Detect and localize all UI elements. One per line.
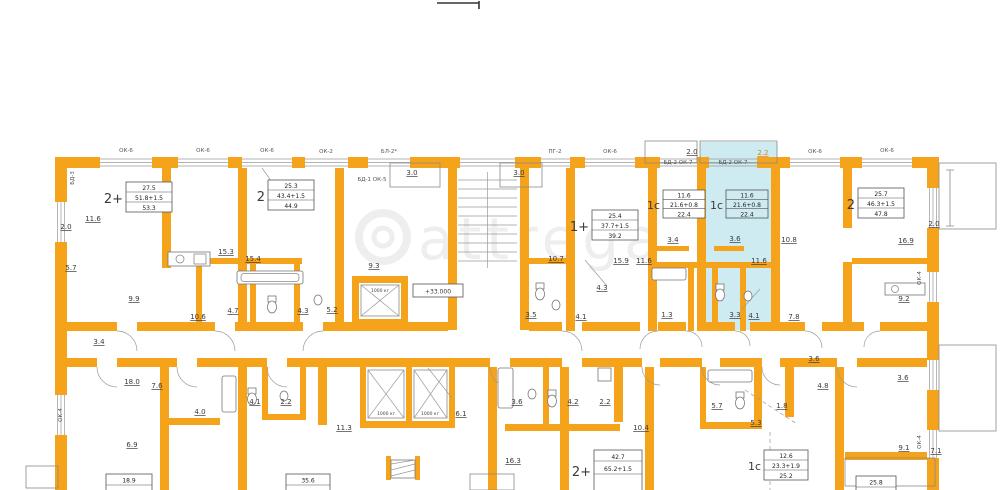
gear-icon	[359, 213, 407, 261]
stamp-row: 65.2+1.5	[604, 466, 632, 473]
stamp-row: 53.3	[142, 205, 156, 212]
balcony-area-label-highlight: 2.2	[757, 149, 768, 157]
stamp-row: 25.7	[874, 191, 888, 198]
window-mark: ОК-6	[260, 148, 274, 154]
room-area-label: 16.9	[898, 237, 914, 245]
section-mark	[437, 1, 479, 9]
room-area-label: 1.3	[661, 311, 672, 319]
stamp-room-count: 2+	[104, 192, 123, 207]
room-area-label: 10.8	[781, 236, 797, 244]
lift-capacity-label: 1000 кг	[377, 411, 396, 417]
room-area-label: 9.3	[368, 262, 379, 270]
apartment-stamp: 2 25.7 46.3+1.5 47.8	[847, 188, 904, 218]
window-mark: БЛ-2*	[381, 149, 397, 155]
balcony-area-label: 2.0	[928, 220, 939, 228]
room-area-label: 7.8	[788, 313, 799, 321]
stamp-row: 23.3+1.9	[772, 463, 800, 470]
window-mark: ОК-6	[196, 148, 210, 154]
stamp-row: 37.7+1.5	[601, 223, 629, 230]
room-area-label: 2.2	[280, 398, 291, 406]
room-area-label: 18.0	[124, 378, 140, 386]
room-area-label: 11.6	[85, 215, 101, 223]
window-mark: ПГ-2	[549, 149, 562, 155]
room-area-label: 7.6	[151, 382, 163, 390]
window-mark: ОК-4	[917, 271, 923, 285]
room-area-label: 3.4	[93, 338, 105, 346]
window-mark: ОК-2	[319, 149, 333, 155]
apartment-stamp: 2 25.3 43.4+1.5 44.9	[257, 180, 314, 210]
window-mark: БД-2 ОК-7	[663, 160, 693, 166]
stamp-room-count: 2+	[572, 465, 591, 480]
stamp-row: 18.9	[122, 478, 136, 485]
room-area-label: 4.0	[194, 408, 205, 416]
window-mark: ОК-6	[119, 148, 133, 154]
room-area-label: 4.1	[575, 313, 586, 321]
stamp-row: 11.6	[677, 193, 691, 200]
stamp-row: 22.4	[740, 211, 754, 218]
room-area-label: 11.6	[636, 257, 652, 265]
room-area-label: 5.3	[750, 419, 761, 427]
room-area-label: 7.1	[930, 447, 941, 455]
floorplan-screenshot: attrega	[0, 0, 1000, 490]
stamp-room-count: 2	[257, 190, 265, 205]
room-area-label: 1.8	[776, 402, 787, 410]
window-mark: БД-2 ОК-7	[718, 160, 748, 166]
elevation-mark: +33.000	[425, 289, 451, 296]
stamp-row: 44.9	[284, 203, 298, 210]
room-area-label: 6.9	[126, 441, 137, 449]
stamp-row: 22.4	[677, 211, 691, 218]
room-area-label: 5.7	[65, 264, 76, 272]
room-area-label: 15.3	[218, 248, 234, 256]
room-area-label: 11.6	[751, 257, 767, 265]
room-area-label: 3.5	[525, 311, 536, 319]
stamp-row: 25.2	[779, 473, 793, 480]
room-area-label: 9.2	[898, 295, 909, 303]
stamp-row: 25.4	[608, 213, 622, 220]
stamp-room-count: 1+	[570, 220, 589, 235]
room-area-label: 4.8	[817, 382, 828, 390]
window-mark: ОК-4	[58, 408, 64, 422]
room-area-label: 3.6	[808, 355, 820, 363]
lift-capacity-label: 1000 кг	[421, 411, 440, 417]
room-area-label: 4.3	[297, 307, 308, 315]
apartment-stamp: 2+ 27.5 51.8+1.5 53.3	[104, 182, 172, 212]
room-area-label: 15.4	[245, 255, 261, 263]
balcony-area-label: 2.0	[686, 148, 697, 156]
stamp-row: 51.8+1.5	[135, 195, 163, 202]
stamp-row: 47.8	[874, 211, 888, 218]
stamp-row: 35.6	[301, 478, 315, 485]
stamp-room-count: 2	[847, 198, 855, 213]
room-area-label: 6.1	[455, 410, 466, 418]
stamp-room-count: 1с	[710, 199, 723, 212]
room-area-label: 16.3	[505, 457, 521, 465]
stamp-row: 12.6	[779, 453, 793, 460]
stamp-row: 11.6	[740, 193, 754, 200]
balcony-area-label: 3.0	[513, 169, 524, 177]
room-area-label: 10.7	[548, 255, 564, 263]
apartment-stamp-partial: 35.6	[286, 474, 330, 490]
stamp-room-count: 1с	[748, 460, 761, 473]
apartment-stamp: 2+ 42.7 65.2+1.5	[572, 450, 642, 490]
room-area-label: 3.6	[729, 235, 741, 243]
room-area-label: 4.1	[748, 312, 759, 320]
stamp-row: 21.6+0.8	[733, 202, 761, 209]
window-mark: ОК-6	[603, 149, 617, 155]
stamp-row: 27.5	[142, 185, 156, 192]
room-area-label: 4.7	[227, 307, 238, 315]
door-mark: БД-1 ОК-5	[357, 177, 387, 183]
room-area-label: 10.4	[633, 424, 649, 432]
balcony-area-label: 3.0	[406, 169, 417, 177]
room-area-label: 5.7	[711, 402, 722, 410]
room-area-label: 4.1	[249, 398, 260, 406]
room-area-label: 3.3	[729, 311, 740, 319]
room-area-label: 2.2	[599, 398, 610, 406]
stamp-row: 25.8	[869, 480, 883, 487]
window-mark: ОК-6	[880, 148, 894, 154]
lift-capacity-label: 1000 кг	[371, 288, 390, 294]
room-area-label: 3.6	[511, 398, 523, 406]
stamp-row: 39.2	[608, 233, 622, 240]
window-mark: ОК-6	[808, 149, 822, 155]
room-area-label: 4.3	[596, 284, 607, 292]
door-mark: БД-3	[70, 171, 76, 185]
room-area-labels: 11.6 2.0 5.7 15.3 15.4 9.9 10.6 4.7 4.3 …	[60, 148, 941, 465]
room-area-label: 10.6	[190, 313, 206, 321]
room-area-label: 3.6	[897, 374, 909, 382]
stamp-row: 42.7	[611, 454, 625, 461]
room-area-label: 2.0	[60, 223, 71, 231]
apartment-stamp-partial: 25.8	[856, 476, 896, 490]
room-area-label: 9.9	[128, 295, 139, 303]
stamp-row: 43.4+1.5	[277, 193, 305, 200]
stamp-row: 46.3+1.5	[867, 201, 895, 208]
stamp-row: 25.3	[284, 183, 298, 190]
window-mark: ОК-4	[917, 435, 923, 449]
stamp-row: 21.6+0.8	[670, 202, 698, 209]
room-area-label: 15.9	[613, 257, 629, 265]
room-area-label: 5.2	[326, 306, 337, 314]
floorplan-svg: attrega	[0, 0, 1000, 490]
stamp-room-count: 1с	[647, 199, 660, 212]
room-area-label: 4.2	[567, 398, 578, 406]
apartment-stamp: 1с 12.6 23.3+1.9 25.2	[748, 450, 808, 480]
room-area-label: 9.1	[898, 444, 909, 452]
apartment-stamp-partial: 18.9	[106, 474, 152, 490]
room-area-label: 11.3	[336, 424, 352, 432]
room-area-label: 3.4	[667, 236, 679, 244]
